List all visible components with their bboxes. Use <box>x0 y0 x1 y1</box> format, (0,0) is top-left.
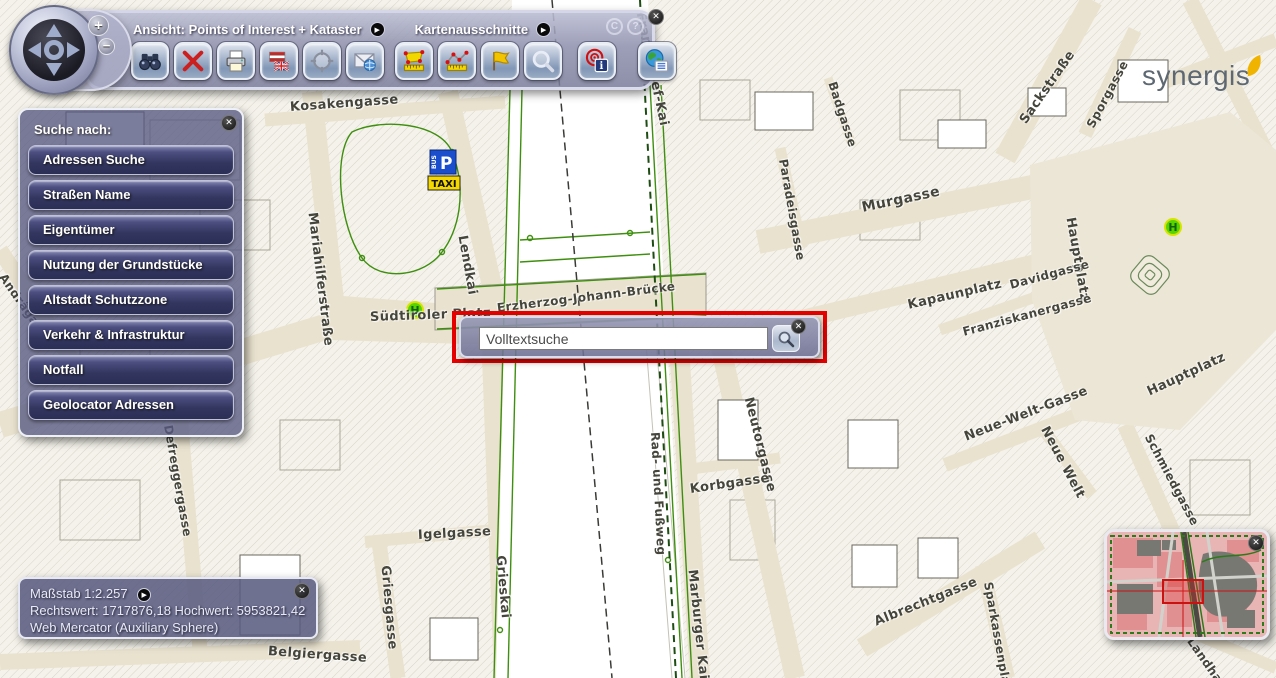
fulltext-close-icon[interactable]: ✕ <box>791 319 806 334</box>
scale-expand-button[interactable]: ▶ <box>137 588 151 602</box>
svg-text:i: i <box>599 61 603 72</box>
scale-label: Maßstab 1:2.257 <box>30 586 128 601</box>
svg-text:BUS: BUS <box>431 155 438 169</box>
svg-text:H: H <box>410 304 419 317</box>
view-expand-button[interactable]: ▶ <box>370 22 385 37</box>
legend-globe-icon[interactable] <box>638 42 676 80</box>
redlining-flag-icon[interactable] <box>481 42 519 80</box>
print-icon[interactable] <box>217 42 255 80</box>
measure-line-icon[interactable] <box>438 42 476 80</box>
copyright-button[interactable]: C <box>606 18 623 35</box>
toolbar-icons: i <box>131 42 676 80</box>
search-panel-close-icon[interactable]: ✕ <box>221 115 237 131</box>
pan-wheel[interactable] <box>9 5 99 95</box>
logo-leaf-icon <box>1244 54 1264 78</box>
overview-close-icon[interactable]: ✕ <box>1248 535 1264 551</box>
search-category-button[interactable]: Geolocator Adressen <box>28 390 234 420</box>
search-panel-buttons: Adressen SucheStraßen NameEigentümerNutz… <box>20 145 242 420</box>
search-category-button[interactable]: Notfall <box>28 355 234 385</box>
pan-left-arrow-icon[interactable] <box>28 42 41 58</box>
svg-text:H: H <box>1168 221 1177 234</box>
extent-rectangle[interactable] <box>1163 580 1203 603</box>
binoculars-icon[interactable] <box>131 42 169 80</box>
search-category-button[interactable]: Eigentümer <box>28 215 234 245</box>
parking-taxi-icon[interactable]: BUS P TAXI <box>428 150 460 190</box>
status-panel: ✕ Maßstab 1:2.257 ▶ Rechtswert: 1717876,… <box>18 577 318 639</box>
language-flags-icon[interactable] <box>260 42 298 80</box>
pan-wheel-inner <box>23 19 85 81</box>
magnifier-icon[interactable] <box>524 42 562 80</box>
status-panel-close-icon[interactable]: ✕ <box>294 583 310 599</box>
search-category-button[interactable]: Altstadt Schutzzone <box>28 285 234 315</box>
search-category-button[interactable]: Nutzung der Grundstücke <box>28 250 234 280</box>
clear-redlining-icon[interactable] <box>174 42 212 80</box>
send-map-icon[interactable] <box>346 42 384 80</box>
extracts-expand-button[interactable]: ▶ <box>536 22 551 37</box>
zoom-in-button[interactable]: + <box>88 15 109 36</box>
logo-text: synergis <box>1142 60 1250 91</box>
toolbar-close-icon[interactable]: ✕ <box>648 9 664 25</box>
bus-stop-icon[interactable]: H <box>1165 219 1181 235</box>
bus-stop-icon[interactable]: H <box>407 302 423 318</box>
projection-label: Web Mercator (Auxiliary Sphere) <box>30 619 306 636</box>
pan-center-icon[interactable] <box>44 40 64 60</box>
help-button[interactable]: ? <box>627 18 644 35</box>
magnifier-icon <box>777 330 795 348</box>
search-category-button[interactable]: Verkehr & Infrastruktur <box>28 320 234 350</box>
fulltext-search-panel: ✕ <box>459 316 820 358</box>
center-map-icon[interactable] <box>303 42 341 80</box>
search-category-button[interactable]: Adressen Suche <box>28 145 234 175</box>
search-panel-title: Suche nach: <box>34 122 242 137</box>
zoom-out-button[interactable]: − <box>98 38 115 55</box>
coordinates-label: Rechtswert: 1717876,18 Hochwert: 5953821… <box>30 602 306 619</box>
search-category-button[interactable]: Straßen Name <box>28 180 234 210</box>
pan-down-arrow-icon[interactable] <box>46 63 62 76</box>
fulltext-search-input[interactable] <box>479 327 768 350</box>
svg-text:TAXI: TAXI <box>431 179 456 190</box>
search-panel: ✕ Suche nach: Adressen SucheStraßen Name… <box>18 108 244 437</box>
main-toolbar: Ansicht: Points of Interest + Kataster ▶… <box>85 10 655 90</box>
map-extracts-label: Kartenausschnitte <box>415 22 528 37</box>
map-application: H H BUS P TAXI KosakengasseMariahilferst… <box>0 0 1276 678</box>
hotlink-info-icon[interactable]: i <box>578 42 616 80</box>
measure-area-icon[interactable] <box>395 42 433 80</box>
overview-map[interactable]: ✕ <box>1104 529 1270 640</box>
view-label: Ansicht: Points of Interest + Kataster <box>133 22 362 37</box>
synergis-logo: synergis <box>1142 60 1250 92</box>
toolbar-title-row: Ansicht: Points of Interest + Kataster ▶… <box>133 18 626 40</box>
pan-up-arrow-icon[interactable] <box>46 24 62 37</box>
svg-text:P: P <box>440 154 452 174</box>
overview-map-canvas <box>1107 532 1267 637</box>
pan-right-arrow-icon[interactable] <box>67 42 80 58</box>
